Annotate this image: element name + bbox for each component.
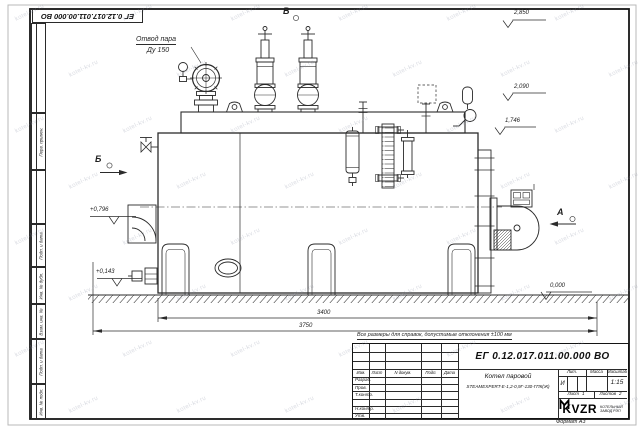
product-model: STEAMEXPERT-Е-1,2-0,9Г-130-ГПК(Ж) <box>458 383 558 392</box>
company-cell: KVZR КОТЕЛЬНЫЙ ЗАВОД РЭП <box>558 398 627 420</box>
margin-field-podp-data-1: Подп. и дата <box>31 224 46 267</box>
steam-platform <box>181 112 465 133</box>
margin-field-label: Подп. и дата <box>39 348 44 376</box>
dimension-3400 <box>158 298 597 336</box>
rev-col-data: Дата <box>441 369 458 377</box>
rev-col-list: Лист <box>369 369 385 377</box>
rev-col-dokum: N докум. <box>385 369 421 377</box>
margin-field-inv-dubl: Инв. № дубл. <box>31 267 46 304</box>
rev-col-izm: Изм. <box>353 369 369 377</box>
title-designation: ЕГ 0.12.017.011.00.000 ВО <box>458 344 627 369</box>
sig-row-nkontr: Н.контр. <box>353 406 385 413</box>
view-label-b: Б <box>95 155 101 164</box>
manhole <box>215 259 241 277</box>
margin-field-label: Перв. примен. <box>39 127 44 156</box>
level-value-0796: +0,796 <box>90 207 109 213</box>
sig-row-utv: Утв. <box>353 413 385 420</box>
lifting-lug <box>227 102 243 112</box>
sig-row-razrab: Разраб. <box>353 377 385 384</box>
view-arrow-b <box>100 163 128 175</box>
lifting-lug <box>437 102 453 112</box>
platform-stub-valve <box>359 102 368 133</box>
view-b-circle <box>293 15 298 20</box>
level-mark-0796 <box>90 217 136 225</box>
platform-stub-valve <box>422 104 431 133</box>
dim-value-3400: 3400 <box>317 310 330 316</box>
level-mark-2850 <box>503 20 546 28</box>
level-mark-1746 <box>495 127 536 135</box>
dim-value-3750: 3750 <box>299 323 312 329</box>
company-subtitle: КОТЕЛЬНЫЙ ЗАВОД РЭП <box>600 405 623 414</box>
company-line2: ЗАВОД РЭП <box>600 409 623 413</box>
margin-field-inv-podl: Инв. № подл. <box>31 384 46 419</box>
margin-field-label: Инв. № дубл. <box>39 272 44 299</box>
drain-valve <box>140 138 158 153</box>
sig-row-empty <box>353 399 385 406</box>
steam-outlet-valve <box>179 47 223 112</box>
boiler-support-rear <box>448 244 475 295</box>
mass-label: Масса <box>586 369 607 376</box>
rev-col-podp: Подп. <box>421 369 441 377</box>
level-mark-2090 <box>503 93 546 101</box>
level-value-1746: 1,746 <box>505 118 520 124</box>
gost-drawing-sheet: ЕГ 0.12.017.011.00.000 ВО Перв. примен. … <box>0 0 644 430</box>
dashed-equipment-box <box>418 85 436 103</box>
downcomer-elbow-box <box>128 205 156 243</box>
level-mark-0143 <box>97 279 142 287</box>
scale-value: 1:15 <box>607 376 627 391</box>
sheet-label: Лист <box>567 392 579 397</box>
sheets-value: 2 <box>619 392 622 397</box>
level-sensor-vessel <box>346 127 359 186</box>
level-value-2090: 2,090 <box>514 84 529 90</box>
top-designation-text: ЕГ 0.12.017.011.00.000 ВО <box>41 12 134 21</box>
sheet-number-cell: Лист 1 <box>558 391 594 398</box>
margin-field-empty <box>31 170 46 224</box>
level-value-0000: 0,000 <box>550 283 565 289</box>
burner <box>490 184 539 250</box>
sig-row-tkontr: Т.контр. <box>353 391 385 398</box>
margin-field-vzam-inv: Взам. инв. № <box>31 304 46 339</box>
product-name: Котел паровой <box>458 372 558 382</box>
ground-hatch <box>88 295 628 303</box>
level-value-2850: 2,850 <box>514 10 529 16</box>
margin-field-label: Взам. инв. № <box>39 308 44 335</box>
kvzr-logo-icon <box>558 398 571 411</box>
view-arrow-a <box>550 216 577 226</box>
margin-field-podp-data-2: Подп. и дата <box>31 339 46 384</box>
safety-valve <box>298 27 319 113</box>
format-label: Формат А3 <box>556 420 586 425</box>
level-value-0143: +0,143 <box>96 269 115 275</box>
lit-label: Лит. <box>558 369 586 376</box>
view-label-v: В <box>283 7 290 16</box>
reference-note: Все размеры для справок, допустимые откл… <box>357 333 512 340</box>
view-label-a: А <box>557 208 564 217</box>
sheets-label: Листов <box>600 392 616 397</box>
steam-outlet-dn-label: Ду 150 <box>147 47 169 54</box>
blowdown-assembly <box>128 268 158 284</box>
scale-label: Масштаб <box>607 369 627 376</box>
steam-outlet-label: Отвод пара <box>136 36 176 45</box>
top-designation-box: ЕГ 0.12.017.011.00.000 ВО <box>32 9 143 23</box>
boiler-support-middle <box>308 244 335 295</box>
boiler-support-front <box>162 244 189 295</box>
pressure-gauge-siphon <box>453 87 476 126</box>
title-block: ЕГ 0.12.017.011.00.000 ВО Котел паровой … <box>352 343 629 419</box>
margin-field-label: Инв. № подл. <box>39 388 44 415</box>
margin-field-perv-primen: Перв. примен. <box>31 113 46 170</box>
sheets-total-cell: Листов 2 <box>594 391 627 398</box>
lit-value: И <box>558 376 567 391</box>
boiler-body <box>158 133 478 293</box>
safety-valve <box>255 27 276 113</box>
sheet-value: 1 <box>582 392 585 397</box>
sig-row-prov: Пров. <box>353 384 385 391</box>
margin-field-label: Подп. и дата <box>39 232 44 260</box>
margin-field-empty <box>31 23 46 113</box>
